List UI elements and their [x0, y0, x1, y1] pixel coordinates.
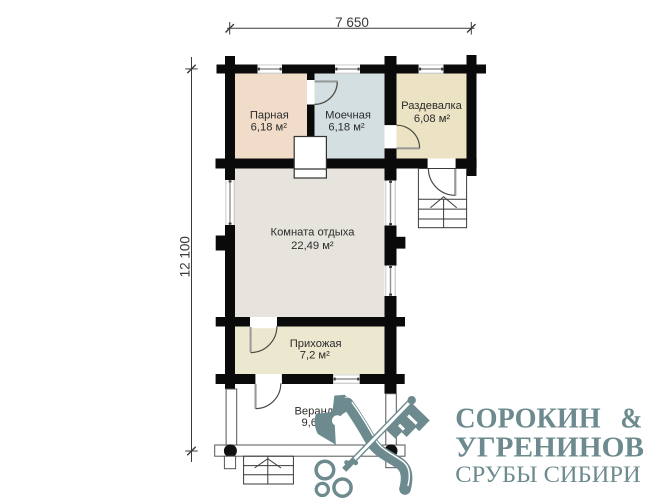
- svg-text:6,18 м²: 6,18 м²: [328, 121, 365, 133]
- svg-text:СРУБЫ СИБИРИ: СРУБЫ СИБИРИ: [455, 462, 640, 487]
- svg-text:12 100: 12 100: [178, 236, 193, 277]
- svg-text:6,08 м²: 6,08 м²: [414, 113, 451, 125]
- svg-text:7 650: 7 650: [335, 15, 369, 30]
- svg-text:&: &: [620, 403, 642, 434]
- svg-text:6,18 м²: 6,18 м²: [251, 121, 288, 133]
- svg-text:Комната отдыха: Комната отдыха: [271, 227, 356, 239]
- svg-text:Парная: Парная: [250, 109, 289, 121]
- svg-text:7,2 м²: 7,2 м²: [300, 350, 330, 362]
- svg-text:Прихожая: Прихожая: [290, 338, 342, 350]
- svg-text:22,49 м²: 22,49 м²: [291, 240, 334, 252]
- svg-text:СОРОКИН: СОРОКИН: [455, 403, 601, 434]
- svg-text:Моечная: Моечная: [325, 109, 371, 121]
- svg-text:УГРЕНИНОВ: УГРЕНИНОВ: [455, 432, 644, 463]
- svg-text:Раздевалка: Раздевалка: [401, 100, 463, 112]
